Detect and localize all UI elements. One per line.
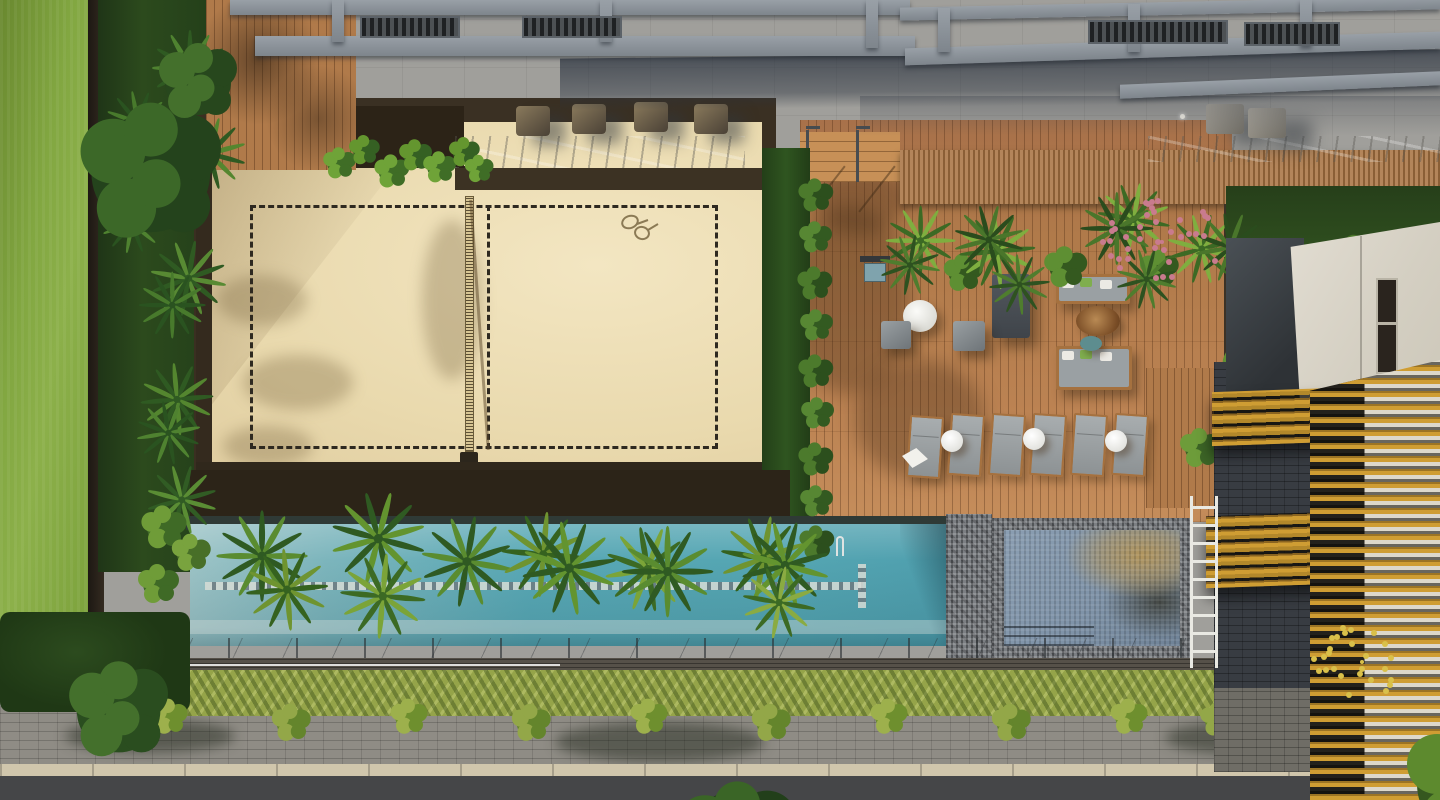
- stone-slab-walkway: [94, 638, 1234, 660]
- asphalt-road: [0, 776, 1440, 800]
- pool-floor-reflection: [190, 620, 948, 634]
- court-center-line: [487, 205, 490, 449]
- tree-shadow: [65, 719, 235, 753]
- lawn: [0, 0, 96, 665]
- perimeter-hedge: [94, 670, 1234, 716]
- vent-grille: [522, 16, 622, 38]
- vent-grille: [360, 16, 460, 38]
- marble-bench-right: [1148, 136, 1440, 162]
- sun-lounger: [906, 415, 944, 479]
- vent-grille: [1244, 22, 1340, 46]
- sun-lounger: [988, 413, 1026, 477]
- lounger-table: [941, 430, 963, 452]
- round-coffee-table: [1076, 306, 1120, 336]
- lounge-chair: [516, 106, 550, 136]
- armchair: [881, 321, 911, 349]
- white-railing: [1190, 496, 1218, 668]
- sofa: [1056, 274, 1130, 304]
- marble-bench-top: [455, 136, 745, 170]
- sun-lounger: [1070, 413, 1108, 477]
- court-edging: [455, 168, 775, 190]
- palm-row-planter: [190, 470, 790, 516]
- pergola-strut: [866, 0, 878, 48]
- pergola-strut: [332, 0, 344, 42]
- court-left-edging: [196, 120, 212, 502]
- armchair: [953, 321, 985, 351]
- pool-ladder: [818, 536, 852, 558]
- paving-shadow: [860, 96, 1440, 136]
- stair-handrail-right: [856, 130, 859, 182]
- facade-seam: [1360, 236, 1362, 396]
- pergola-strut: [938, 8, 950, 52]
- sofa: [1056, 346, 1132, 390]
- lane-line-t-mark: [858, 564, 866, 608]
- deck-stairs: [800, 132, 900, 182]
- timber-deck-right-strip: [1146, 368, 1222, 508]
- daybed: [992, 274, 1030, 338]
- small-side-table: [1080, 336, 1102, 351]
- beach-tennis-racquets: [618, 212, 664, 242]
- window-slot: [1376, 278, 1398, 374]
- lounger-table: [1105, 430, 1127, 452]
- corner-shrubs: [0, 612, 190, 712]
- pool-shadow: [900, 524, 948, 646]
- lounger-table: [1023, 428, 1045, 450]
- tree-shadow: [555, 722, 765, 762]
- outdoor-shower: [860, 256, 890, 262]
- shower-drain-mat: [864, 263, 886, 282]
- lane-line: [205, 582, 863, 590]
- golden-louver-screen: [1310, 360, 1440, 800]
- pergola-beam: [255, 36, 915, 56]
- aerial-terrace-render: [0, 0, 1440, 800]
- vent-grille: [1088, 20, 1228, 44]
